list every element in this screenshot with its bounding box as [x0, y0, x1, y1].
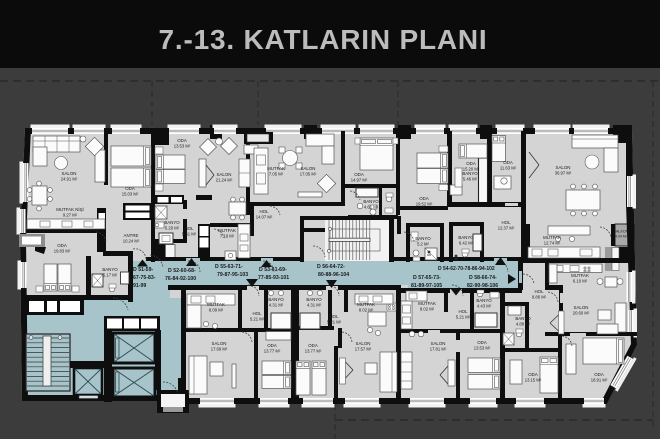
- svg-text:SALON: SALON: [556, 165, 571, 170]
- svg-text:MUTFAK: MUTFAK: [267, 166, 285, 171]
- svg-text:D 55-63-71-: D 55-63-71-: [215, 264, 243, 270]
- svg-text:BALKON: BALKON: [614, 230, 629, 234]
- svg-text:ODA: ODA: [594, 372, 604, 377]
- svg-text:24.91 M²: 24.91 M²: [61, 177, 78, 182]
- svg-text:BANYO: BANYO: [476, 298, 492, 303]
- svg-text:D 56-64-72-: D 56-64-72-: [317, 264, 345, 270]
- svg-text:ODA: ODA: [466, 161, 476, 166]
- svg-text:MUTFAK: MUTFAK: [571, 273, 589, 278]
- svg-text:6.42 M²: 6.42 M²: [459, 241, 474, 246]
- svg-text:6.10 M²: 6.10 M²: [573, 279, 588, 284]
- svg-text:8.02 M²: 8.02 M²: [359, 308, 374, 313]
- svg-text:ODA: ODA: [503, 160, 513, 165]
- svg-text:12.37 M²: 12.37 M²: [498, 226, 515, 231]
- svg-text:79-87-95-103: 79-87-95-103: [217, 272, 248, 278]
- svg-text:ODA: ODA: [57, 243, 67, 248]
- svg-text:8.02 M²: 8.02 M²: [420, 307, 435, 312]
- svg-text:MUTFAK: MUTFAK: [418, 301, 436, 306]
- svg-text:BANYO: BANYO: [306, 297, 322, 302]
- svg-text:HOL: HOL: [329, 314, 339, 319]
- svg-text:5.46 M²: 5.46 M²: [463, 177, 478, 182]
- svg-text:9.86 M²: 9.86 M²: [532, 295, 547, 300]
- svg-text:4.31 M²: 4.31 M²: [269, 303, 284, 308]
- svg-text:14.07 M²: 14.07 M²: [256, 215, 273, 220]
- svg-text:HOL: HOL: [259, 209, 269, 214]
- svg-text:12.74 M²: 12.74 M²: [544, 241, 561, 246]
- svg-text:D 57-65-73-: D 57-65-73-: [413, 275, 441, 281]
- svg-text:13.77 M²: 13.77 M²: [305, 349, 322, 354]
- svg-text:7.05 M²: 7.05 M²: [269, 172, 284, 177]
- svg-text:5.21 M²: 5.21 M²: [456, 315, 471, 320]
- svg-text:HOL: HOL: [252, 311, 262, 316]
- svg-text:BANYO: BANYO: [415, 236, 431, 241]
- svg-text:17.57 M²: 17.57 M²: [355, 347, 372, 352]
- svg-text:BANYO: BANYO: [458, 235, 474, 240]
- svg-text:36.97 M²: 36.97 M²: [555, 171, 572, 176]
- svg-text:SALON: SALON: [574, 305, 589, 310]
- svg-text:D 54-62-70-78-86-94-102: D 54-62-70-78-86-94-102: [438, 266, 495, 272]
- svg-text:ODA: ODA: [528, 372, 538, 377]
- svg-text:ANTRE: ANTRE: [124, 233, 139, 238]
- svg-text:67-75-83-: 67-75-83-: [133, 275, 156, 281]
- svg-text:4.61 M²: 4.61 M²: [364, 205, 379, 210]
- svg-text:19.83 M²: 19.83 M²: [54, 249, 71, 254]
- svg-text:5.2 M²: 5.2 M²: [417, 242, 429, 247]
- svg-text:SALON: SALON: [212, 341, 227, 346]
- svg-text:D 58-66-74-: D 58-66-74-: [469, 275, 497, 281]
- svg-text:4.88 M²: 4.88 M²: [516, 322, 531, 327]
- svg-text:MUTFAK: MUTFAK: [357, 302, 375, 307]
- svg-text:13.77 M²: 13.77 M²: [264, 349, 281, 354]
- svg-text:4.43 M²: 4.43 M²: [477, 304, 492, 309]
- svg-text:ODA: ODA: [419, 196, 429, 201]
- svg-text:D 52-60-68-: D 52-60-68-: [168, 268, 196, 274]
- svg-text:5.21 M²: 5.21 M²: [250, 317, 265, 322]
- svg-text:77-85-93-101: 77-85-93-101: [258, 275, 289, 281]
- svg-text:BANYO: BANYO: [268, 297, 284, 302]
- svg-text:MUTFAK: MUTFAK: [543, 235, 561, 240]
- svg-text:BANYO: BANYO: [515, 316, 531, 321]
- svg-text:82-90-98-106: 82-90-98-106: [467, 283, 498, 289]
- svg-text:ODA: ODA: [177, 138, 187, 143]
- svg-text:8.09 M²: 8.09 M²: [209, 308, 224, 313]
- svg-text:HOL: HOL: [184, 226, 194, 231]
- svg-text:11.63 M²: 11.63 M²: [500, 166, 517, 171]
- svg-text:20.60 M²: 20.60 M²: [573, 311, 590, 316]
- svg-text:5.20 M²: 5.20 M²: [165, 226, 180, 231]
- svg-text:91-99: 91-99: [133, 283, 146, 289]
- svg-text:MUTFAK: MUTFAK: [207, 302, 225, 307]
- svg-text:19.52 M²: 19.52 M²: [416, 202, 433, 207]
- svg-text:4.31 M²: 4.31 M²: [307, 303, 322, 308]
- svg-text:81-89-97-105: 81-89-97-105: [411, 283, 442, 289]
- svg-text:17.81 M²: 17.81 M²: [430, 347, 447, 352]
- svg-text:MUTFAK: MUTFAK: [218, 228, 236, 233]
- svg-text:14.97 M²: 14.97 M²: [351, 178, 368, 183]
- svg-text:HOL: HOL: [501, 220, 511, 225]
- svg-text:7.19 M²: 7.19 M²: [220, 234, 235, 239]
- svg-text:ODA: ODA: [267, 343, 277, 348]
- svg-text:7.-13. KATLARIN PLANI: 7.-13. KATLARIN PLANI: [159, 24, 488, 55]
- svg-text:SALON: SALON: [431, 341, 446, 346]
- svg-text:13.15 M²: 13.15 M²: [525, 378, 542, 383]
- svg-text:17.05 M²: 17.05 M²: [300, 172, 317, 177]
- svg-text:10.24 M²: 10.24 M²: [123, 239, 140, 244]
- svg-text:MUTFAK NİŞİ: MUTFAK NİŞİ: [56, 207, 84, 212]
- svg-text:BANYO: BANYO: [102, 267, 118, 272]
- svg-text:BANYO: BANYO: [363, 199, 379, 204]
- svg-text:HOL: HOL: [458, 309, 468, 314]
- svg-text:ODA: ODA: [125, 186, 135, 191]
- svg-text:ODA: ODA: [354, 172, 364, 177]
- svg-text:9.27 M²: 9.27 M²: [63, 213, 78, 218]
- svg-text:80-88-96-104: 80-88-96-104: [318, 272, 349, 278]
- svg-text:D 51-59-: D 51-59-: [133, 267, 153, 273]
- svg-text:15.03 M²: 15.03 M²: [122, 192, 139, 197]
- svg-text:SALON: SALON: [62, 171, 77, 176]
- svg-text:5.61 M²: 5.61 M²: [182, 232, 197, 237]
- svg-text:4.04 M²: 4.04 M²: [615, 235, 628, 239]
- svg-text:ODA: ODA: [308, 343, 318, 348]
- svg-text:SALON: SALON: [217, 172, 232, 177]
- svg-text:BANYO: BANYO: [462, 171, 478, 176]
- svg-text:13.53 M²: 13.53 M²: [474, 346, 491, 351]
- svg-text:ODA: ODA: [477, 340, 487, 345]
- svg-text:SALON: SALON: [301, 166, 316, 171]
- svg-text:13.53 M²: 13.53 M²: [174, 144, 191, 149]
- svg-text:HOL: HOL: [534, 289, 544, 294]
- svg-text:SALON: SALON: [356, 341, 371, 346]
- svg-text:BANYO: BANYO: [164, 220, 180, 225]
- svg-text:5.21 M²: 5.21 M²: [327, 320, 342, 325]
- svg-text:5.17 M²: 5.17 M²: [103, 273, 118, 278]
- svg-text:21.24 M²: 21.24 M²: [216, 178, 233, 183]
- svg-text:17.69 M²: 17.69 M²: [211, 347, 228, 352]
- svg-text:18.91 M²: 18.91 M²: [591, 378, 608, 383]
- svg-text:76-84-92-100: 76-84-92-100: [165, 276, 196, 282]
- svg-text:D 53-61-69-: D 53-61-69-: [259, 267, 287, 273]
